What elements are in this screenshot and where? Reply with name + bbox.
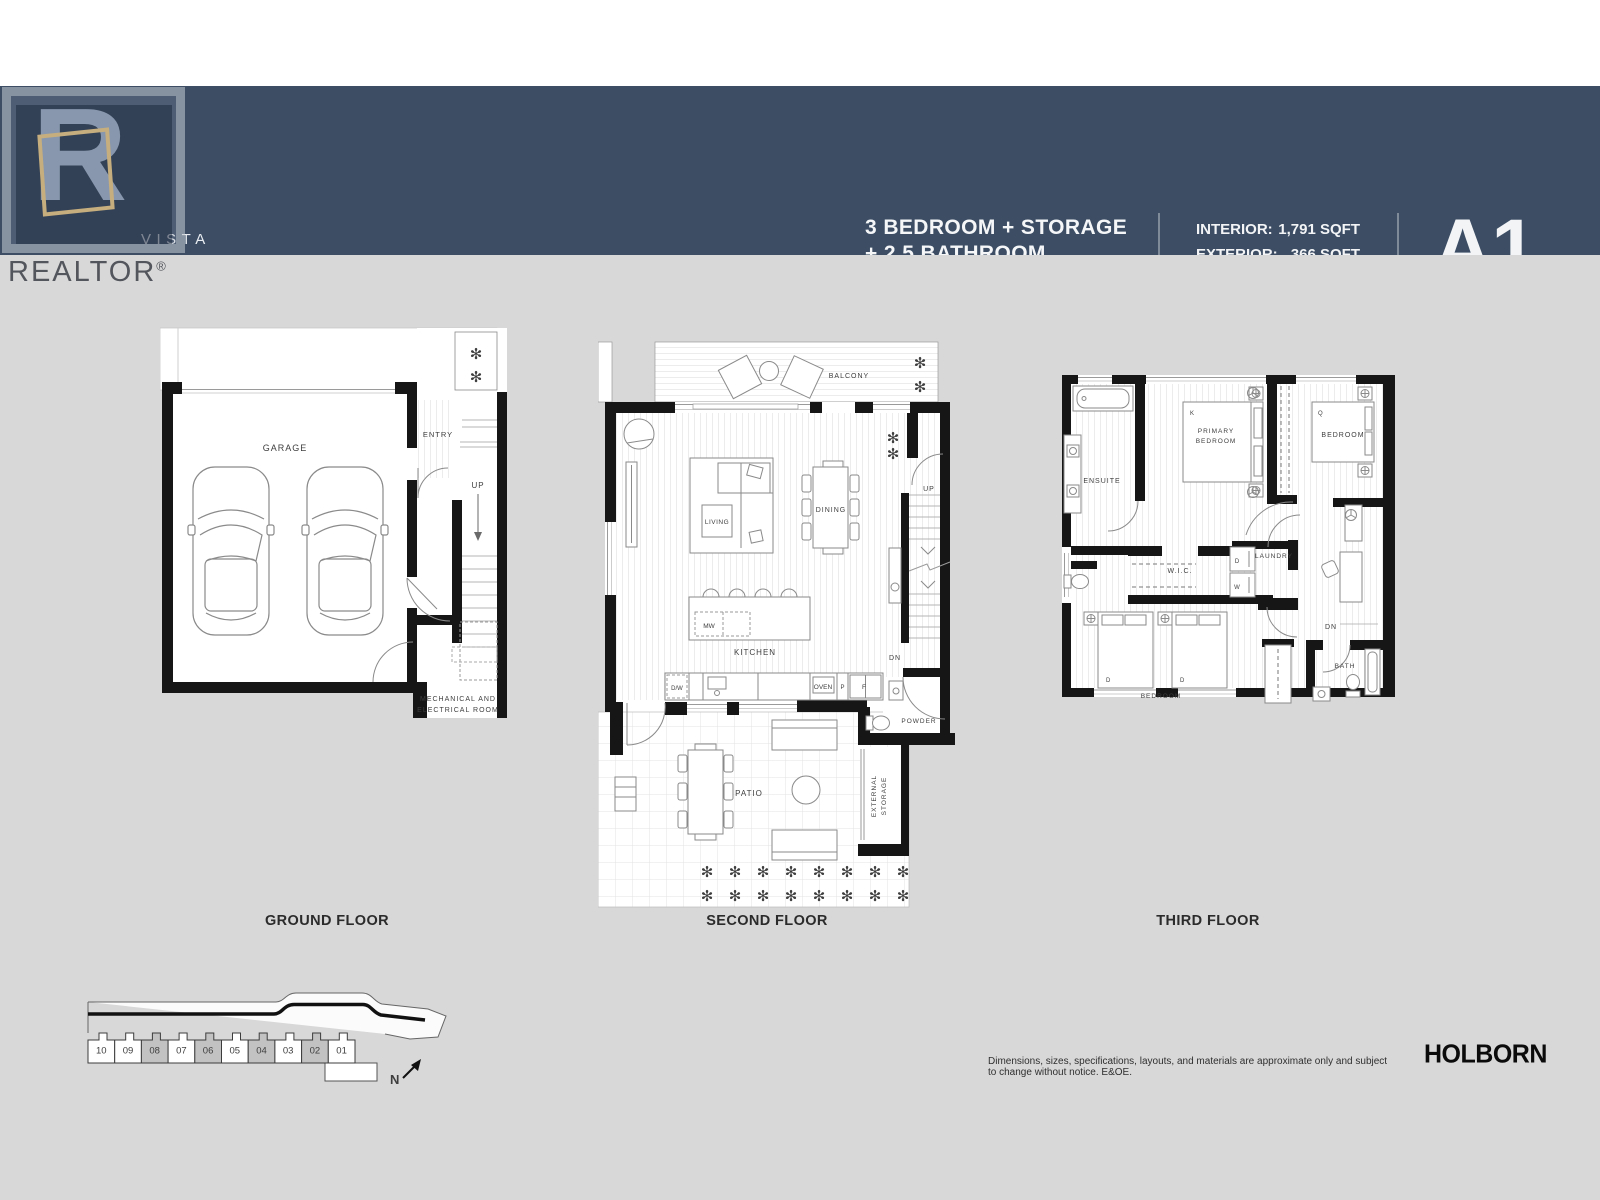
car-icon — [302, 467, 388, 635]
pantry-label: P — [840, 685, 844, 691]
ground-floor-plan: GARAGE ENTRY UP MECHANICAL AND ELECTRICA… — [160, 320, 507, 725]
third-floor-plan: ENSUITE PRIMARY BEDROOM K Q BEDROOM W.I.… — [1040, 365, 1396, 710]
dn-label: DN — [1325, 624, 1337, 631]
second-floor-title: SECOND FLOOR — [600, 913, 934, 929]
unit-cell: 10 — [88, 1033, 115, 1063]
svg-text:03: 03 — [283, 1046, 294, 1057]
bath-label: BATH — [1335, 663, 1356, 670]
up-label: UP — [923, 486, 935, 493]
unit-cell: 03 — [275, 1033, 302, 1063]
dryer-label: D — [1235, 559, 1240, 565]
mech-room-label: ELECTRICAL ROOM — [417, 707, 499, 714]
living-label: LIVING — [705, 519, 729, 526]
svg-text:10: 10 — [96, 1046, 107, 1057]
svg-text:09: 09 — [123, 1046, 134, 1057]
external-storage-label: STORAGE — [881, 777, 888, 816]
garage-label: GARAGE — [263, 443, 308, 453]
gold-square-icon — [37, 127, 114, 216]
second-floor-plan: BALCONY LIVING DINING UP MW KITCHEN DN D… — [598, 335, 958, 915]
powder-label: POWDER — [901, 718, 936, 725]
svg-text:08: 08 — [149, 1046, 160, 1057]
svg-text:06: 06 — [203, 1046, 214, 1057]
double-bed-label: D — [1180, 678, 1185, 684]
unit-type-line1: 3 BEDROOM + STORAGE — [865, 215, 1127, 241]
unit-cell-highlighted: 02 — [302, 1033, 329, 1063]
microwave-label: MW — [703, 623, 715, 630]
unit-cell: 01 — [328, 1033, 355, 1063]
kitchen-counter — [665, 673, 883, 700]
ensuite-label: ENSUITE — [1083, 478, 1120, 485]
site-units: 10 09 08 07 06 05 04 03 02 01 — [88, 1033, 355, 1063]
svg-text:04: 04 — [256, 1046, 267, 1057]
dishwasher-label: D/W — [671, 686, 683, 692]
unit-cell-highlighted: 08 — [141, 1033, 168, 1063]
washer-label: W — [1234, 585, 1240, 591]
primary-bedroom-label: PRIMARY — [1198, 428, 1235, 435]
site-plan: 10 09 08 07 06 05 04 03 02 01 N — [80, 985, 450, 1105]
mech-room-label: MECHANICAL AND — [420, 696, 496, 703]
ground-floor-title: GROUND FLOOR — [160, 913, 494, 929]
unit-cell: 05 — [222, 1033, 249, 1063]
top-white-strip — [0, 0, 1600, 86]
stat-value: 1,791 SQFT — [1278, 217, 1360, 242]
svg-text:05: 05 — [230, 1046, 241, 1057]
north-arrow-icon: N — [390, 1059, 421, 1087]
entry-label: ENTRY — [423, 430, 453, 439]
realtor-watermark-logo: R — [2, 87, 185, 253]
site-plan-svg: 10 09 08 07 06 05 04 03 02 01 N — [80, 985, 450, 1100]
realtor-logo-square: R — [16, 105, 172, 244]
realtor-word: REALTOR — [8, 256, 156, 288]
dn-label: DN — [889, 655, 901, 662]
external-storage-label: EXTERNAL — [871, 775, 878, 817]
unit-cell: 09 — [115, 1033, 142, 1063]
fridge-label: F — [862, 684, 866, 691]
ground-floor-svg: GARAGE ENTRY UP MECHANICAL AND ELECTRICA… — [160, 320, 507, 720]
disclaimer-text: Dimensions, sizes, specifications, layou… — [988, 1056, 1388, 1078]
wic-label: W.I.C. — [1167, 568, 1192, 575]
header-bar: VISTA TOWNHOMES 3 BEDROOM + STORAGE + 2.… — [0, 86, 1600, 255]
patio-label: PATIO — [735, 789, 763, 798]
realtor-watermark-text: REALTOR® — [8, 256, 168, 289]
laundry-label: LAUNDRY — [1255, 553, 1293, 560]
bedroom-label: BEDROOM — [1321, 432, 1364, 439]
north-label: N — [390, 1072, 399, 1087]
stat-interior: INTERIOR: 1,791 SQFT — [1196, 217, 1360, 242]
holborn-logo: HOLBORN — [1424, 1039, 1547, 1069]
second-floor-svg: BALCONY LIVING DINING UP MW KITCHEN DN D… — [598, 335, 958, 910]
unit-cell-highlighted: 06 — [195, 1033, 222, 1063]
double-bed-label: D — [1106, 678, 1111, 684]
queen-bed-label: Q — [1318, 411, 1323, 417]
oven-label: OVEN — [814, 684, 833, 691]
unit-cell-highlighted: 04 — [248, 1033, 275, 1063]
floorplan-sheet: VISTA TOWNHOMES 3 BEDROOM + STORAGE + 2.… — [0, 0, 1600, 1200]
stat-label: INTERIOR: — [1196, 217, 1273, 242]
up-label: UP — [471, 481, 484, 490]
svg-text:07: 07 — [176, 1046, 187, 1057]
third-floor-svg: ENSUITE PRIMARY BEDROOM K Q BEDROOM W.I.… — [1040, 365, 1396, 705]
kitchen-label: KITCHEN — [734, 648, 776, 657]
unit-cell: 07 — [168, 1033, 195, 1063]
primary-bedroom-label: BEDROOM — [1196, 438, 1237, 445]
third-floor-title: THIRD FLOOR — [1041, 913, 1375, 929]
kitchen-island — [689, 589, 810, 640]
registered-mark: ® — [156, 258, 168, 273]
balcony-label: BALCONY — [829, 373, 869, 380]
dining-label: DINING — [816, 507, 847, 514]
svg-text:02: 02 — [310, 1046, 321, 1057]
car-icon — [188, 467, 274, 635]
king-bed-label: K — [1190, 411, 1194, 417]
bedroom-label: BEDROOM — [1141, 693, 1182, 700]
svg-text:01: 01 — [336, 1046, 347, 1057]
